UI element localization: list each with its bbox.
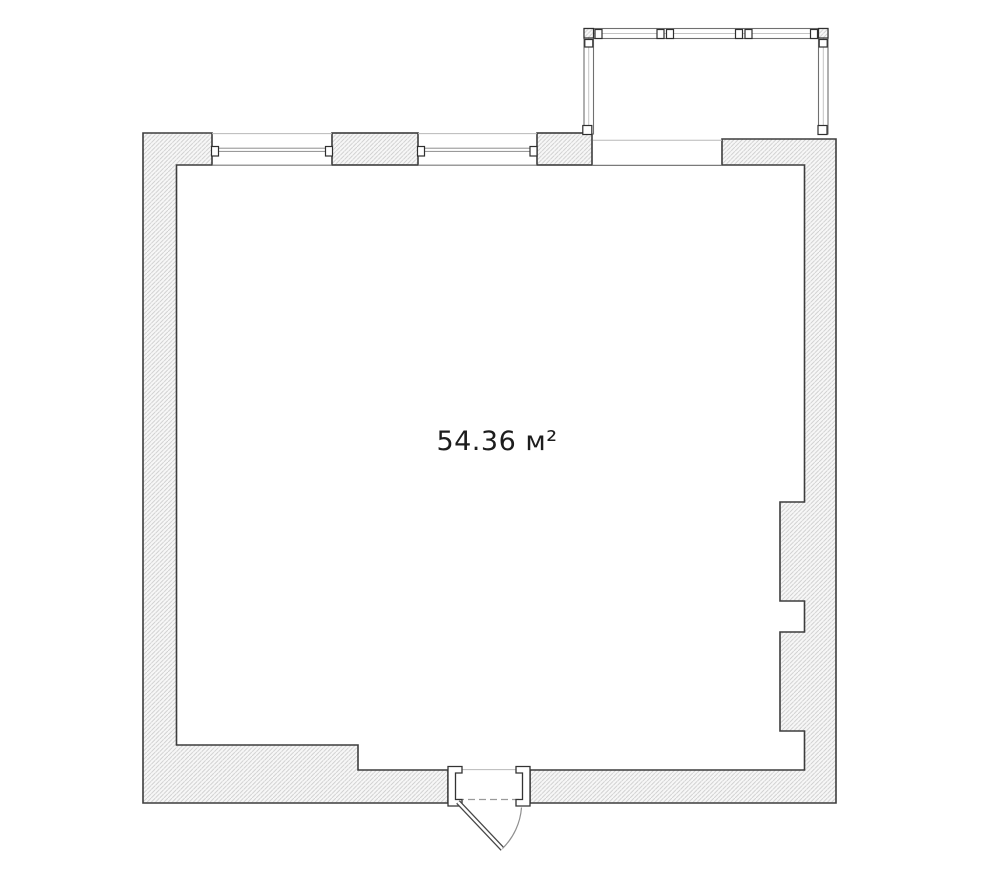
balcony-mullion	[736, 30, 743, 39]
wall-right-and-bottom	[530, 139, 836, 803]
balcony-mullion	[657, 30, 664, 39]
walls	[143, 133, 836, 803]
balcony-mullion	[585, 40, 593, 48]
balcony-mullion	[595, 30, 602, 39]
window-2-frame	[425, 148, 531, 151]
window-2	[418, 134, 538, 166]
balcony-mullion	[819, 40, 827, 48]
balcony-rail-right-base	[818, 126, 827, 135]
wall-pier-between-windows	[332, 133, 418, 165]
window-1-frame	[219, 148, 326, 151]
balcony-mullion	[745, 30, 752, 39]
room-area-label: 54.36 м²	[436, 426, 557, 457]
balcony-mullion	[667, 30, 674, 39]
balcony-mullion	[811, 30, 818, 39]
door-jamb-left	[448, 767, 462, 807]
wall-pier-left-of-balcony	[537, 133, 592, 165]
balcony-corner-post-right	[819, 29, 829, 39]
window-2-left-cap	[418, 147, 425, 157]
wall-left-and-bottom	[143, 133, 448, 803]
window-1	[212, 134, 333, 166]
floor-plan-canvas: 54.36 м²	[0, 0, 996, 892]
window-1-left-cap	[212, 147, 219, 157]
window-1-right-cap	[326, 147, 333, 157]
balcony-rail-left-base	[583, 126, 592, 135]
door-swing-arc	[503, 808, 522, 849]
door-leaf-inner-line	[458, 802, 503, 849]
balcony-glazing	[583, 29, 828, 135]
window-2-right-cap	[530, 147, 537, 157]
balcony-opening	[592, 140, 722, 165]
door-jamb-right	[516, 767, 530, 807]
entry-door	[448, 767, 530, 850]
floor-plan-page: 54.36 м²	[0, 0, 996, 892]
balcony-corner-post-left	[584, 29, 594, 39]
